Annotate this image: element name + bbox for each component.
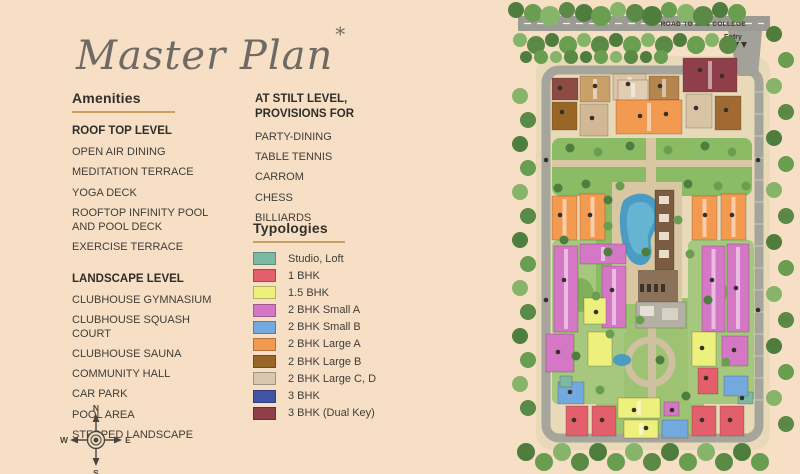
tree xyxy=(766,286,782,302)
tree xyxy=(604,222,613,231)
tree xyxy=(679,453,697,471)
building-core xyxy=(662,79,666,97)
tree xyxy=(572,352,581,361)
tree xyxy=(636,316,645,325)
map-building xyxy=(566,406,588,436)
tree xyxy=(512,136,528,152)
legend-row: Studio, Loft xyxy=(253,252,453,265)
building-core xyxy=(637,401,641,415)
unit-marker xyxy=(728,418,733,423)
legend-row: 2 BHK Large C, D xyxy=(253,372,453,385)
compass-w: W xyxy=(60,435,69,445)
building-core xyxy=(631,83,635,97)
amenities-section-title: ROOF TOP LEVEL xyxy=(72,125,257,137)
tree xyxy=(566,144,575,153)
amenity-item: CLUBHOUSE SAUNA xyxy=(72,348,224,362)
typology-swatch xyxy=(253,355,276,368)
tree xyxy=(715,453,733,471)
tree xyxy=(512,376,528,392)
typology-label: Studio, Loft xyxy=(276,253,344,265)
legend-rows: Studio, Loft1 BHK1.5 BHK2 BHK Small A2 B… xyxy=(253,252,453,420)
tree xyxy=(589,443,607,461)
map-building xyxy=(560,376,572,387)
tree xyxy=(594,50,608,64)
tree xyxy=(596,386,605,395)
tree xyxy=(766,338,782,354)
stilt-level-heading: AT STILT LEVEL, PROVISIONS FOR xyxy=(255,92,371,122)
tree xyxy=(642,6,662,26)
unit-marker xyxy=(698,68,703,73)
tree xyxy=(626,142,635,151)
master-plan-page: { "page": { "title": "Master Plan", "ast… xyxy=(0,0,800,474)
tree xyxy=(535,453,553,471)
building-core xyxy=(564,249,568,329)
tree xyxy=(560,236,569,245)
tree xyxy=(520,256,536,272)
tree xyxy=(712,2,728,18)
map-building xyxy=(580,104,608,136)
map-building xyxy=(552,102,577,130)
unit-marker xyxy=(730,213,735,218)
building-core xyxy=(639,423,643,435)
unit-marker xyxy=(610,288,615,293)
stilt-item: PARTY-DINING xyxy=(255,131,407,145)
building-core xyxy=(563,199,567,237)
unit-marker xyxy=(556,350,561,355)
tree xyxy=(742,182,751,191)
tree xyxy=(656,356,665,365)
tree xyxy=(520,112,536,128)
tree xyxy=(520,304,536,320)
unit-marker xyxy=(626,82,631,87)
map-building xyxy=(686,94,712,128)
stilt-item: CARROM xyxy=(255,171,407,185)
building-core xyxy=(647,103,651,131)
tree xyxy=(607,453,625,471)
tree xyxy=(643,453,661,471)
amenity-item: COMMUNITY HALL xyxy=(72,368,224,382)
amenity-item: CLUBHOUSE SQUASH COURT xyxy=(72,314,224,342)
stilt-level-column: AT STILT LEVEL, PROVISIONS FOR PARTY-DIN… xyxy=(255,92,445,232)
tree xyxy=(766,390,782,406)
tree xyxy=(778,312,794,328)
tree xyxy=(604,248,613,257)
tree xyxy=(577,33,591,47)
unit-marker xyxy=(593,84,598,89)
unit-marker xyxy=(756,158,761,163)
tree xyxy=(520,160,536,176)
amenity-item: MEDITATION TERRACE xyxy=(72,166,224,180)
unit-marker xyxy=(644,426,649,431)
amenities-heading: Amenities xyxy=(72,90,257,106)
tree xyxy=(766,182,782,198)
tree xyxy=(520,208,536,224)
tree xyxy=(512,280,528,296)
amenity-item: CLUBHOUSE GYMNASIUM xyxy=(72,294,224,308)
typology-label: 2 BHK Large C, D xyxy=(276,373,376,385)
tree xyxy=(571,453,589,471)
amenities-section-title: LANDSCAPE LEVEL xyxy=(72,273,257,285)
unit-marker xyxy=(732,348,737,353)
stilt-item: TABLE TENNIS xyxy=(255,151,407,165)
typology-swatch xyxy=(253,372,276,385)
unit-marker xyxy=(734,286,739,291)
unit-marker xyxy=(724,108,729,113)
legend-row: 3 BHK (Dual Key) xyxy=(253,407,453,420)
tree xyxy=(616,182,625,191)
building-core xyxy=(703,199,707,237)
tree xyxy=(550,51,562,63)
tree xyxy=(766,26,782,42)
tree xyxy=(778,364,794,380)
stilt-item: CHESS xyxy=(255,192,407,206)
tree xyxy=(575,4,593,22)
unit-marker xyxy=(638,114,643,119)
tree xyxy=(580,51,592,63)
amenity-item: ROOFTOP INFINITY POOL AND POOL DECK xyxy=(72,207,224,235)
tree xyxy=(701,142,710,151)
amenity-item: OPEN AIR DINING xyxy=(72,146,224,160)
tree xyxy=(766,234,782,250)
tree xyxy=(582,180,591,189)
tree xyxy=(564,50,578,64)
tree xyxy=(512,88,528,104)
tree xyxy=(591,6,611,26)
page-title: Master Plan* xyxy=(76,22,346,79)
tree xyxy=(512,328,528,344)
tree xyxy=(728,4,746,22)
tree xyxy=(512,184,528,200)
tree xyxy=(606,330,615,339)
typologies-legend: Typologies Studio, Loft1 BHK1.5 BHK2 BHK… xyxy=(253,220,453,424)
building-core xyxy=(712,249,716,329)
building-core xyxy=(612,269,616,325)
tree xyxy=(553,443,571,461)
tree xyxy=(641,33,655,47)
unit-marker xyxy=(544,298,549,303)
legend-row: 2 BHK Small A xyxy=(253,304,453,317)
tree xyxy=(517,443,535,461)
tree xyxy=(778,52,794,68)
unit-marker xyxy=(694,106,699,111)
tree xyxy=(609,33,623,47)
unit-marker xyxy=(544,158,549,163)
tree xyxy=(508,2,524,18)
tree xyxy=(766,130,782,146)
map-building xyxy=(715,96,741,130)
unit-marker xyxy=(560,110,565,115)
tree xyxy=(540,6,560,26)
typology-label: 2 BHK Small B xyxy=(276,321,361,333)
tree xyxy=(524,4,542,22)
tree xyxy=(693,6,713,26)
tree xyxy=(559,2,575,18)
unit-marker xyxy=(670,408,675,413)
typologies-heading: Typologies xyxy=(253,220,453,236)
legend-row: 1 BHK xyxy=(253,269,453,282)
amenity-item: EXERCISE TERRACE xyxy=(72,241,224,255)
legend-row: 1.5 BHK xyxy=(253,286,453,299)
unit-marker xyxy=(704,376,709,381)
compass-s: S xyxy=(93,468,99,474)
unit-marker xyxy=(558,86,563,91)
tree xyxy=(686,250,695,259)
tree xyxy=(661,2,677,18)
legend-row: 2 BHK Large B xyxy=(253,355,453,368)
map-building xyxy=(698,368,718,394)
unit-marker xyxy=(664,112,669,117)
tree xyxy=(714,182,723,191)
amenity-item: CAR PARK xyxy=(72,388,224,402)
tree xyxy=(520,400,536,416)
tree xyxy=(520,51,532,63)
legend-row: 2 BHK Small B xyxy=(253,321,453,334)
typologies-rule xyxy=(253,241,345,243)
title-asterisk: * xyxy=(335,22,346,46)
tree xyxy=(545,33,559,47)
tree xyxy=(604,196,613,205)
tree xyxy=(733,443,751,461)
amenities-sections: ROOF TOP LEVELOPEN AIR DININGMEDITATION … xyxy=(72,125,257,443)
unit-marker xyxy=(740,396,745,401)
unit-marker xyxy=(594,310,599,315)
unit-marker xyxy=(756,308,761,313)
compass-rose: N S W E xyxy=(58,402,134,474)
tree xyxy=(534,50,548,64)
building-core xyxy=(593,79,597,99)
tree xyxy=(682,392,691,401)
typology-label: 3 BHK (Dual Key) xyxy=(276,407,375,419)
amenities-rule xyxy=(72,111,175,113)
tree xyxy=(722,358,731,367)
amenity-item: YOGA DECK xyxy=(72,187,224,201)
unit-marker xyxy=(590,116,595,121)
map-building xyxy=(724,376,748,396)
site-map: ROAD TO MES COLLEGE Entry xyxy=(500,0,800,474)
tree xyxy=(704,296,713,305)
legend-row: 2 BHK Large A xyxy=(253,338,453,351)
unit-marker xyxy=(700,418,705,423)
tree xyxy=(766,78,782,94)
tree xyxy=(778,208,794,224)
map-building xyxy=(662,420,688,438)
typology-swatch xyxy=(253,269,276,282)
tree xyxy=(592,292,601,301)
amenities-column: Amenities ROOF TOP LEVELOPEN AIR DININGM… xyxy=(72,90,257,449)
unit-marker xyxy=(720,74,725,79)
unit-marker xyxy=(600,418,605,423)
tree xyxy=(520,352,536,368)
tree xyxy=(778,260,794,276)
tree xyxy=(778,156,794,172)
tree xyxy=(512,232,528,248)
tree xyxy=(778,104,794,120)
tree xyxy=(640,51,652,63)
tree xyxy=(697,443,715,461)
unit-marker xyxy=(632,408,637,413)
typology-swatch xyxy=(253,286,276,299)
tree xyxy=(677,4,695,22)
tree xyxy=(642,248,651,257)
unit-marker xyxy=(700,346,705,351)
tree xyxy=(624,50,638,64)
tree xyxy=(751,453,769,471)
tree xyxy=(610,2,626,18)
typology-label: 3 BHK xyxy=(276,390,320,402)
building-core xyxy=(708,61,712,89)
tree xyxy=(664,146,673,155)
unit-marker xyxy=(568,390,573,395)
typology-label: 1 BHK xyxy=(276,270,320,282)
unit-marker xyxy=(572,418,577,423)
map-building xyxy=(552,78,578,100)
typology-swatch xyxy=(253,338,276,351)
tree xyxy=(719,36,737,54)
typology-swatch xyxy=(253,407,276,420)
typology-label: 1.5 BHK xyxy=(276,287,329,299)
tree xyxy=(684,180,693,189)
typology-label: 2 BHK Small A xyxy=(276,304,360,316)
typology-swatch xyxy=(253,321,276,334)
tree xyxy=(674,216,683,225)
typology-label: 2 BHK Large B xyxy=(276,356,361,368)
unit-marker xyxy=(558,213,563,218)
typology-label: 2 BHK Large A xyxy=(276,338,361,350)
typology-swatch xyxy=(253,390,276,403)
unit-marker xyxy=(588,213,593,218)
tree xyxy=(626,4,644,22)
tree xyxy=(594,148,603,157)
tree xyxy=(778,416,794,432)
tree xyxy=(610,51,622,63)
tree xyxy=(661,443,679,461)
unit-marker xyxy=(562,278,567,283)
unit-marker xyxy=(658,84,663,89)
typology-swatch xyxy=(253,252,276,265)
tree xyxy=(654,50,668,64)
legend-row: 3 BHK xyxy=(253,390,453,403)
stilt-level-items: PARTY-DININGTABLE TENNISCARROMCHESSBILLI… xyxy=(255,131,445,226)
compass-n: N xyxy=(93,403,99,413)
compass-e: E xyxy=(125,435,131,445)
tree xyxy=(687,36,705,54)
tree xyxy=(728,148,737,157)
tree xyxy=(513,33,527,47)
tree xyxy=(705,33,719,47)
typology-swatch xyxy=(253,304,276,317)
tree xyxy=(625,443,643,461)
tree xyxy=(673,33,687,47)
unit-marker xyxy=(710,278,715,283)
tree xyxy=(554,184,563,193)
unit-marker xyxy=(703,213,708,218)
